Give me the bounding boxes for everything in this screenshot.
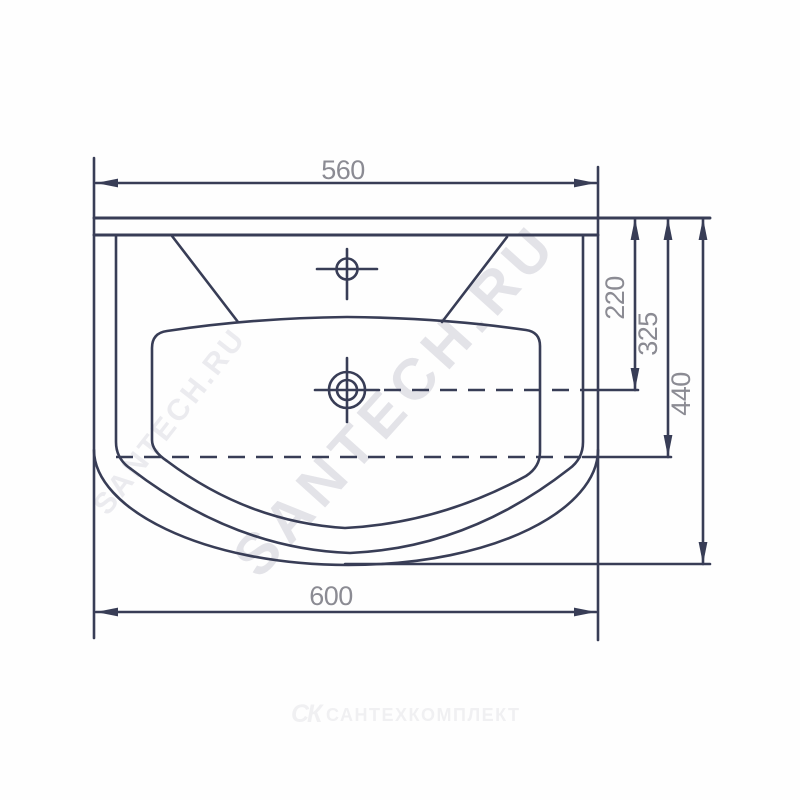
footer-brand-text: САНТЕХКОМПЛЕКТ <box>326 705 521 725</box>
dim-label-600: 600 <box>309 581 353 611</box>
dimension-overall-depth: 440 <box>666 218 707 564</box>
arrowhead-220-top <box>631 218 640 240</box>
arrowhead-560-left <box>96 179 118 188</box>
dim-label-325: 325 <box>633 312 663 356</box>
washbasin-technical-drawing: SANTECH.RU SANTECH.RU <box>0 0 800 800</box>
arrowhead-600-right <box>574 608 596 617</box>
arrowhead-440-bottom <box>699 542 708 564</box>
arrowhead-560-right <box>574 179 596 188</box>
dim-label-560: 560 <box>321 155 365 185</box>
dimension-drain-offset: 220 <box>600 218 639 390</box>
dimension-inner-depth: 325 <box>633 218 672 457</box>
arrowhead-440-top <box>699 218 708 240</box>
faucet-hole-symbol <box>317 249 377 299</box>
arrowhead-600-left <box>96 608 118 617</box>
footer-logo-mark: СК <box>291 700 324 728</box>
footer-logo: СК САНТЕХКОМПЛЕКТ <box>291 700 521 728</box>
arrowhead-325-top <box>664 218 673 240</box>
arrowhead-220-bottom <box>631 368 640 390</box>
dim-label-440: 440 <box>666 372 696 416</box>
dim-label-220: 220 <box>600 276 630 320</box>
dimension-overall-width: 600 <box>96 581 596 616</box>
dimension-top-width: 560 <box>96 155 596 187</box>
funnel-diagonal-left <box>172 236 238 322</box>
drawing-page: SANTECH.RU SANTECH.RU <box>0 0 800 800</box>
arrowhead-325-bottom <box>664 435 673 457</box>
watermark-main-text: SANTECH.RU <box>221 211 571 589</box>
